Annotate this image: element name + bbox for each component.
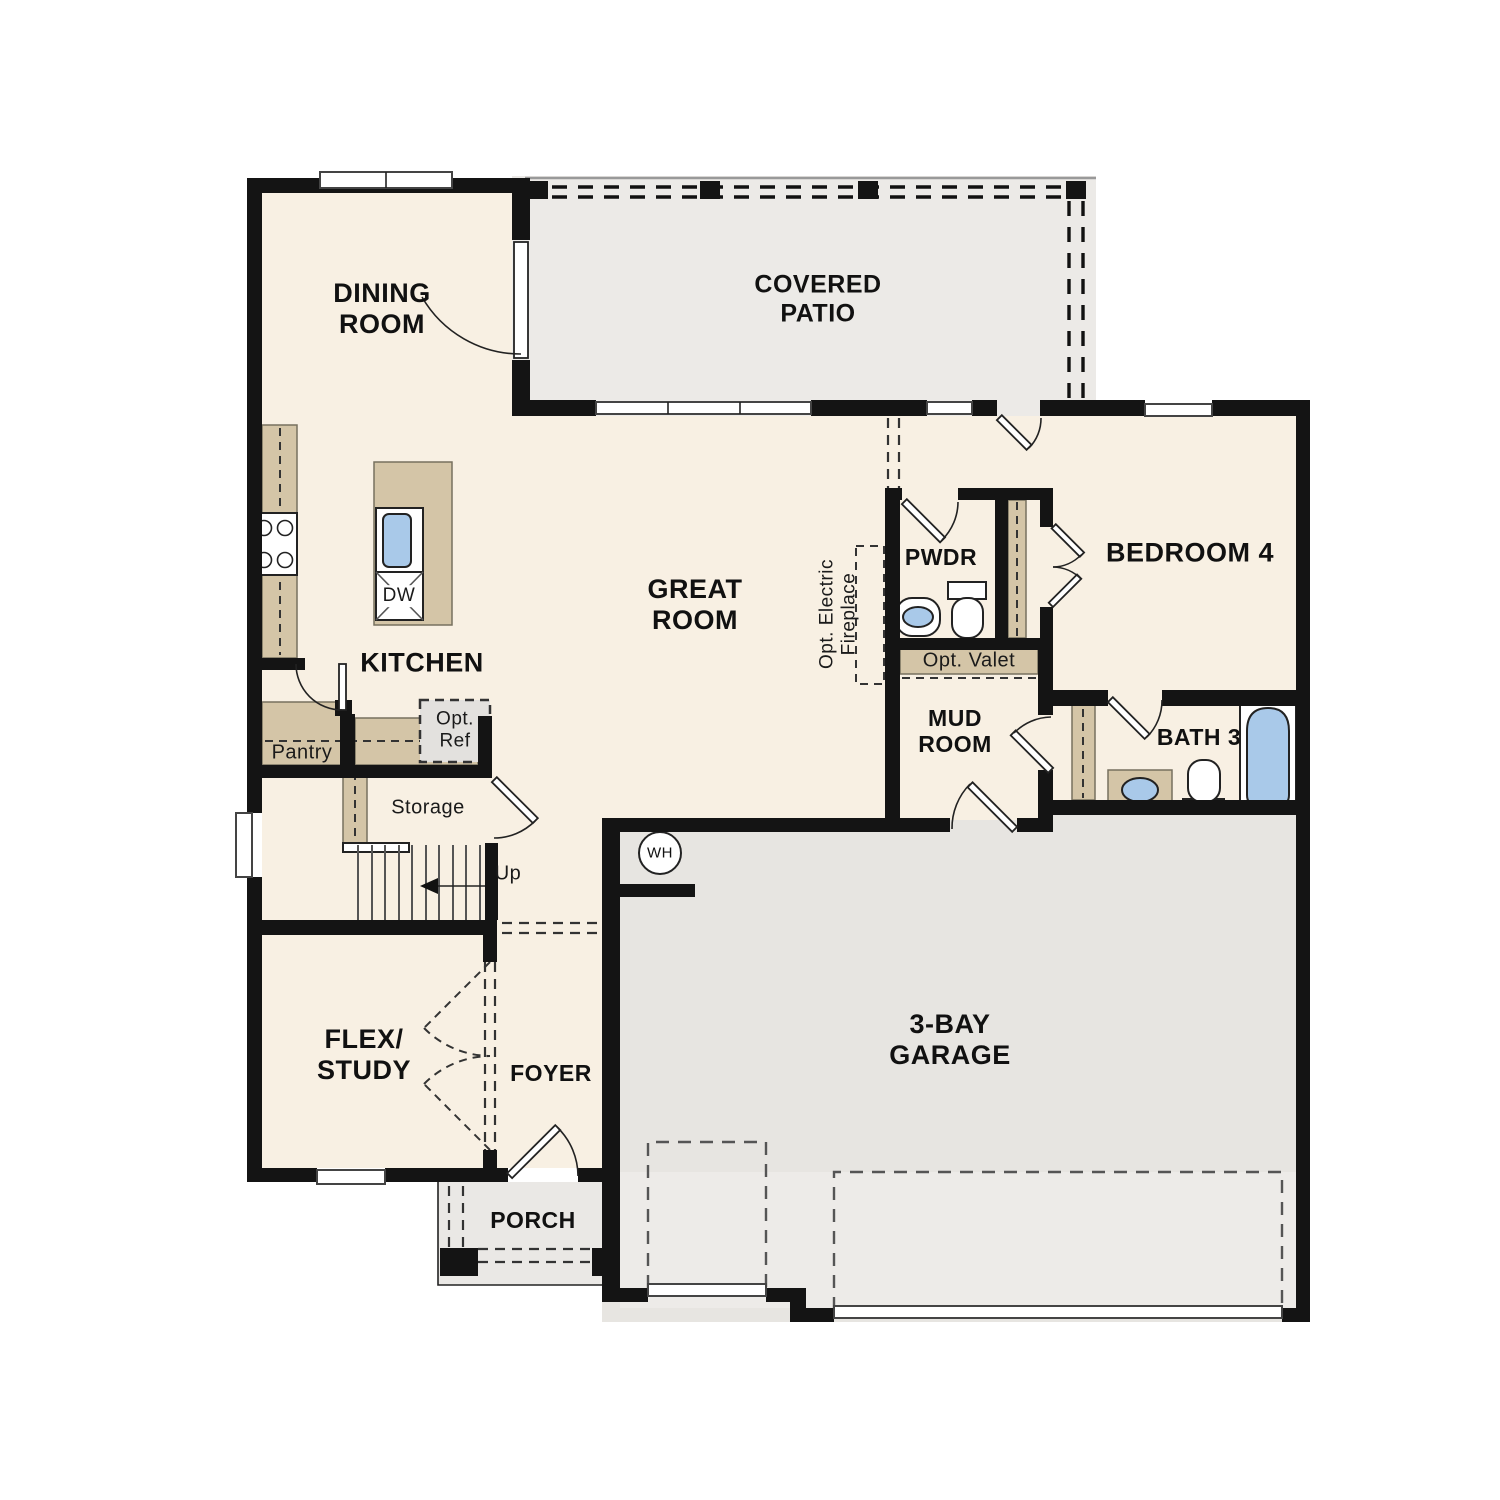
bedroom4-closet-shelf — [1008, 500, 1026, 638]
garage-door-double — [834, 1306, 1282, 1318]
stair-closet-shelf — [343, 770, 367, 845]
room-label-flex-study: FLEX/ STUDY — [317, 1024, 411, 1086]
hall-closet-shelf — [1072, 693, 1095, 800]
bath3-tub — [1240, 700, 1296, 813]
room-label-foyer: FOYER — [510, 1060, 592, 1086]
annotation-opt-valet: Opt. Valet — [923, 650, 1015, 673]
room-label-porch: PORCH — [490, 1207, 576, 1233]
room-label-dining-room: DINING ROOM — [333, 278, 431, 340]
pwdr-sink-icon — [896, 598, 940, 636]
great-room-slider-window — [596, 402, 811, 414]
room-label-bath-3: BATH 3 — [1157, 724, 1241, 750]
annotation-water-heater: WH — [647, 844, 673, 861]
stair-wall-window — [236, 813, 252, 877]
room-label-powder: PWDR — [905, 544, 977, 570]
garage-door-single — [648, 1284, 766, 1296]
annotation-opt-ref: Opt. Ref — [436, 708, 474, 751]
room-label-mud-room: MUD ROOM — [918, 705, 992, 757]
annotation-storage: Storage — [391, 797, 465, 820]
floorplan-drawing — [0, 0, 1500, 1500]
hall-window — [927, 402, 972, 414]
annotation-opt-electric-fireplace: Opt. Electric Fireplace — [816, 559, 859, 669]
dining-window — [320, 172, 452, 188]
pwdr-toilet-icon — [948, 582, 986, 638]
flex-window — [317, 1170, 385, 1184]
room-label-kitchen: KITCHEN — [360, 648, 484, 679]
annotation-up: Up — [495, 863, 522, 886]
room-label-covered-patio: COVERED PATIO — [754, 271, 881, 328]
bedroom4-window — [1145, 404, 1212, 416]
annotation-pantry: Pantry — [272, 742, 333, 765]
floorplan-canvas: DINING ROOM COVERED PATIO GREAT ROOM KIT… — [0, 0, 1500, 1500]
room-label-great-room: GREAT ROOM — [648, 574, 743, 636]
room-label-bedroom-4: BEDROOM 4 — [1106, 538, 1274, 569]
annotation-dishwasher: DW — [381, 585, 418, 607]
room-label-garage: 3-BAY GARAGE — [889, 1009, 1011, 1071]
